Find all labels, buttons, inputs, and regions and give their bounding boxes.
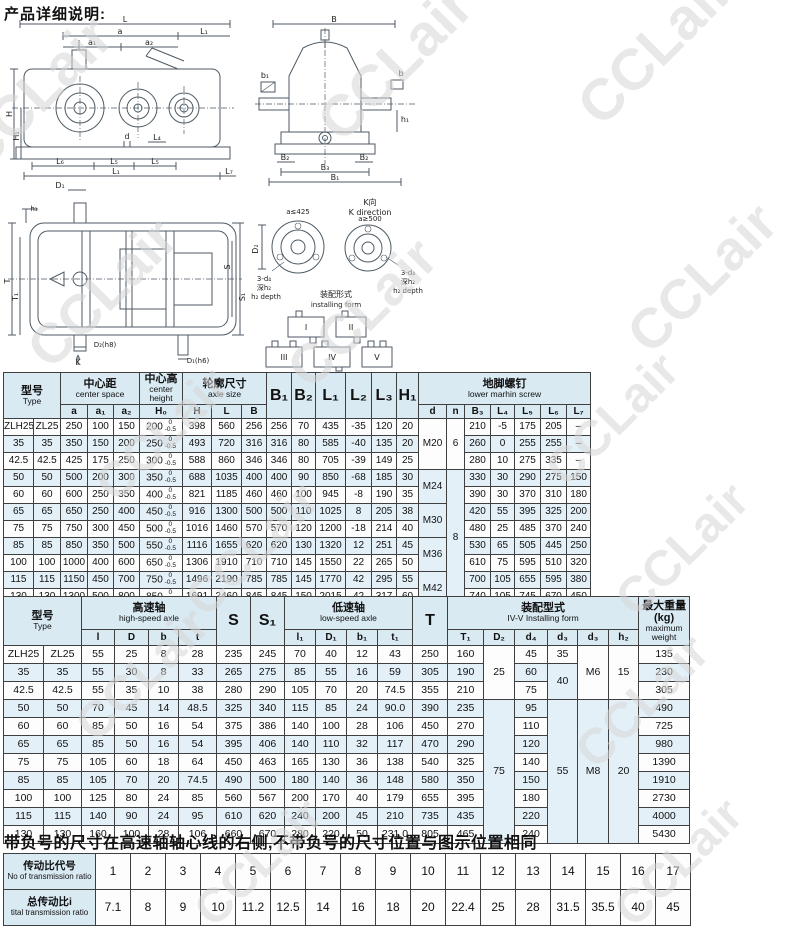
installing-form-caption-cn: 装配形式 [320,289,352,299]
cell: 588 [183,452,212,469]
cell: 11 [446,854,481,890]
cell: 530 [465,537,491,554]
cell: 540 [413,754,448,772]
front-view-drawing: L a L₁ a₁ a₂ H H₁ d L₄ L₆ L₅ L₅ L₁ L₇ D₁ [8,14,238,194]
header-cell: a [61,404,88,418]
cell: 250 [88,503,114,520]
header-cell: B₃ [465,404,491,418]
form-label-2: II [349,323,354,332]
cell: 16 [621,854,656,890]
cell: 25 [484,646,515,700]
cell: 100 [316,718,347,736]
cell: 25 [115,646,149,664]
cell: 445 [541,537,567,554]
cell: 30 [491,469,515,486]
cell: 100 [34,554,61,571]
cell: 595 [515,554,541,571]
cell: 35.5 [586,890,621,926]
cell: 150 [114,418,140,435]
form-label-3: III [280,353,287,362]
cell: 346 [267,452,292,469]
cell: 14 [551,854,586,890]
cell: 95 [515,700,548,718]
cell: 75 [515,682,548,700]
drawing-lines [8,203,244,365]
cell: 750 [61,520,88,537]
dim-D2: D₂(h8) [94,341,117,349]
cell: 1200 [316,520,346,537]
header-cell: H₁ [397,373,419,419]
cell: 55 [548,700,578,844]
cell: 220 [515,808,548,826]
cell: 15 [609,646,639,700]
cell: 55 [491,503,515,520]
cell: 6500-0.5 [140,554,183,571]
cell: 45 [397,537,419,554]
cell: 1320 [316,537,346,554]
cell: -5 [491,418,515,435]
dim-L: L [123,15,128,24]
cell: 18 [376,890,411,926]
cell: 60 [34,486,61,503]
cell: 295 [372,571,397,588]
cell: 35 [115,682,149,700]
cell: 20 [347,682,378,700]
cell: 1116 [183,537,212,554]
cell: 305 [413,664,448,682]
cell: 22 [346,554,372,571]
cell: 90.0 [378,700,413,718]
cell: 10 [149,682,179,700]
cell: 75 [4,520,34,537]
cell: 705 [316,452,346,469]
k-direction-title-cn: K向 [363,197,376,207]
cell: 12 [346,537,372,554]
cell: 190 [448,664,484,682]
cell: 117 [378,736,413,754]
cell: 595 [541,571,567,588]
header-cell: D₁ [316,630,347,646]
cell: 250 [567,537,591,554]
cell: 1390 [639,754,690,772]
cell: 130 [316,754,347,772]
header-cell: L₂ [346,373,372,419]
cell: 5000-0.5 [140,520,183,537]
cell: 5 [236,854,271,890]
cell: 75 [34,520,61,537]
cell: 1910 [639,772,690,790]
cell: ZL25 [34,418,61,435]
cell: 42.5 [44,682,82,700]
cell: 85 [179,790,217,808]
cell: 1185 [212,486,242,503]
cell: 24 [149,790,179,808]
cell: 7 [306,854,341,890]
cell: 18 [149,754,179,772]
cell: 31.5 [551,890,586,926]
cell: 45 [656,890,691,926]
cell: 9 [376,854,411,890]
form-label-1: I [305,323,307,332]
side-view-drawing: B b₁ b h₁ B₂ B₂ B₃ B₁ [255,14,415,194]
cell: 245 [251,646,285,664]
dim-a1: a₁ [88,38,96,47]
cell: 256 [267,418,292,435]
cell: 65 [4,503,34,520]
cell: 80 [115,790,149,808]
cell: 55 [82,664,115,682]
cell: 115 [34,571,61,588]
cell: 35 [44,664,82,682]
product-detail-page: 产品详细说明: CCLair CCLair CCLair CCLair CCLa… [0,0,800,926]
cell: 140 [285,718,316,736]
cell: 355 [413,682,448,700]
dim-D2: D₂ [251,244,260,253]
header-cell: b₁ [347,630,378,646]
cell: 42 [346,571,372,588]
cell: 300 [88,520,114,537]
cell: 688 [183,469,212,486]
cell: 8 [341,854,376,890]
cell: 总传动比itital transmission ratio [4,890,96,926]
cell: 320 [567,554,591,571]
cell: 260 [465,435,491,452]
cell: 70 [316,682,347,700]
cell: 490 [217,772,251,790]
cell: 785 [242,571,267,588]
cell: 7.1 [96,890,131,926]
circle2-label: a≥500 [358,215,382,223]
dim-B2b: B₂ [360,153,369,162]
cell: 179 [378,790,413,808]
note-depth-en: h₂ depth [251,293,281,301]
cell: 140 [316,772,347,790]
cell: 6 [447,418,465,469]
drawing-lines [10,20,236,190]
cell: 30 [115,664,149,682]
cell: 335 [541,452,567,469]
cell: 50 [4,700,44,718]
cell: 214 [372,520,397,537]
cell: 42.5 [4,682,44,700]
header-cell: B₂ [292,373,316,419]
cell: 655 [413,790,448,808]
cell: 2000-0.5 [140,418,183,435]
cell: 1460 [212,520,242,537]
cell: 3000-0.5 [140,452,183,469]
cell: 85 [44,772,82,790]
cell: 275 [515,452,541,469]
cell: 490 [639,700,690,718]
cell: 175 [515,418,541,435]
cell: 22.4 [446,890,481,926]
header-cell: T [413,597,448,646]
table-row: 505070451448.5325340115852490.0390235759… [4,700,690,718]
cell: 13 [516,854,551,890]
cell: 400 [267,469,292,486]
cell: 305 [639,682,690,700]
header-cell: 中心距center space [61,373,140,405]
cell: 655 [515,571,541,588]
dim-h1: h₁ [401,115,409,124]
cell: 485 [515,520,541,537]
cell: 70 [285,646,316,664]
cell: 860 [212,452,242,469]
cell: 230 [639,664,690,682]
cell: 500 [267,503,292,520]
cell: 1035 [212,469,242,486]
k-direction-drawing: K向 K direction a≤425 a≥500 D₂ 3-d₄ 深h₂ h… [248,195,428,371]
dim-b1: b₁ [261,71,269,80]
cell: -8 [346,486,372,503]
cell: 40 [548,664,578,700]
cell: 620 [251,808,285,826]
cell: 42.5 [4,452,34,469]
cell: 610 [465,554,491,571]
cell: 275 [541,469,567,486]
cell: 75 [4,754,44,772]
dim-S1: S₁ [238,293,247,301]
header-cell: 低速轴low-speed axle [285,597,413,630]
cell: 125 [82,790,115,808]
dim-S: S [223,264,232,269]
dim-L1: L₁ [200,27,208,36]
header-cell: L [212,404,242,418]
cell: 28 [347,718,378,736]
cell: 620 [267,537,292,554]
cell: 7500-0.5 [140,571,183,588]
cell: 45 [115,700,149,718]
cell: 65 [34,503,61,520]
cell: 80 [292,452,316,469]
cell: 2500-0.5 [140,435,183,452]
cell: 115 [4,571,34,588]
cell: 290 [448,736,484,754]
cell: 50 [397,554,419,571]
cell: 255 [515,435,541,452]
cell: 510 [541,554,567,571]
dim-a: a [118,27,123,36]
header-cell: t [179,630,217,646]
cell: 35 [4,435,34,452]
header-cell: a₂ [114,404,140,418]
cell: 20 [397,435,419,452]
cell: 4500-0.5 [140,503,183,520]
cell: 250 [413,646,448,664]
cell: 10 [411,854,446,890]
dim-D1: D₁ [55,181,64,190]
cell: 325 [541,503,567,520]
cell: 45 [515,646,548,664]
cell: 710 [267,554,292,571]
dim-H1: H₁ [12,131,21,140]
cell: 235 [217,646,251,664]
dim-h1: h₁ [30,205,37,213]
cell: 105 [491,571,515,588]
cell: 145 [292,571,316,588]
cell: 505 [515,537,541,554]
cell: 350 [88,537,114,554]
cell: 16 [149,736,179,754]
cell: 1910 [212,554,242,571]
header-cell: b [149,630,179,646]
cell: 60 [44,718,82,736]
cell: 560 [212,418,242,435]
cell: 120 [515,736,548,754]
cell: 316 [267,435,292,452]
cell: 85 [285,664,316,682]
cell: 140 [515,754,548,772]
table-row: lDbtl₁D₁b₁t₁T₁D₂d₄d₃d₃h₂ [4,630,690,646]
cell: 4000 [639,808,690,826]
cell: 60 [4,486,34,503]
cell: 100 [44,790,82,808]
cell: 140 [82,808,115,826]
table-row: ZLH25ZL252501001502000-0.539856025625670… [4,418,591,435]
cell: M20 [419,418,447,469]
cell: 450 [114,520,140,537]
cell: 370 [515,486,541,503]
cell: 265 [217,664,251,682]
cell: 3500-0.5 [140,469,183,486]
cell: 980 [639,736,690,754]
cell: 43 [378,646,413,664]
cell: 105 [82,754,115,772]
table-row: 65656502504004500-0.59161300500500110102… [4,503,591,520]
cell: 20 [149,772,179,790]
cell: ZLH25 [4,646,44,664]
cell: 110 [316,736,347,754]
cell: 1025 [316,503,346,520]
cell: 480 [465,520,491,537]
table-row: 10010010004006006500-0.51306191071071014… [4,554,591,571]
cell: 500 [251,772,285,790]
cell: 200 [114,435,140,452]
cell: 85 [82,718,115,736]
cell: 205 [372,503,397,520]
cell: 85 [316,700,347,718]
cell: 120 [372,418,397,435]
cell: 65 [44,736,82,754]
cell: 1770 [316,571,346,588]
table-row: 85858503505005500-0.51116165562062013013… [4,537,591,554]
cell: 4 [201,854,236,890]
cell: 100 [4,554,34,571]
header-cell: H₀ [140,404,183,418]
cell: 325 [217,700,251,718]
table-row: 总传动比itital transmission ratio7.1891011.2… [4,890,691,926]
table-row: 42.542.54251752503000-0.5588860346346807… [4,452,591,469]
cell: 450 [413,718,448,736]
header-cell: L₇ [567,404,591,418]
cell: 200 [316,808,347,826]
header-cell: a₁ [88,404,114,418]
cell: ZL25 [44,646,82,664]
cell: 2730 [639,790,690,808]
cell: 33 [179,664,217,682]
cell: 35 [4,664,44,682]
header-cell: t₁ [378,630,413,646]
cell: 250 [61,418,88,435]
cell: 463 [251,754,285,772]
cell: 190 [372,486,397,503]
cell: 725 [639,718,690,736]
cell: 1306 [183,554,212,571]
cell: M36 [419,537,447,571]
dim-L1b: L₁ [112,167,120,176]
header-cell: d₄ [515,630,548,646]
cell: 8 [149,664,179,682]
watermark: CCLair [614,190,790,366]
cell: 10 [491,452,515,469]
cell: 38 [179,682,217,700]
cell: 500 [61,469,88,486]
cell: 16 [341,890,376,926]
cell: 916 [183,503,212,520]
cell: 90 [292,469,316,486]
cell: 20 [397,418,419,435]
cell: 59 [378,664,413,682]
cell: 28 [516,890,551,926]
cell: 115 [44,808,82,826]
dim-D1: D₁(h6) [187,357,210,365]
header-cell: L₆ [541,404,567,418]
cell: 16 [347,664,378,682]
cell: 85 [34,537,61,554]
cell: 110 [515,718,548,736]
cell: 0 [491,435,515,452]
cell: 30 [397,469,419,486]
installing-form-caption-en: installing form [311,301,362,309]
cell: 130 [292,537,316,554]
cell: 400 [88,554,114,571]
dim-L5b: L₅ [151,157,159,166]
cell: 300 [114,469,140,486]
cell: 2 [131,854,166,890]
dim-L7: L₇ [225,167,233,176]
cell: 60 [515,664,548,682]
header-cell: l₁ [285,630,316,646]
header-cell: L₄ [491,404,515,418]
cell: 55 [82,682,115,700]
cell: 120 [292,520,316,537]
dim-L5: L₅ [110,157,118,166]
cell: 205 [541,418,567,435]
cell: 70 [292,418,316,435]
drawing-lines [255,20,415,186]
dim-B1: B₁ [331,173,340,182]
cell: 240 [567,520,591,537]
cell: 710 [242,554,267,571]
header-cell: L₃ [372,373,397,419]
cell: 42.5 [34,452,61,469]
cell: 149 [372,452,397,469]
header-cell: h₂ [609,630,639,646]
cell: -68 [346,469,372,486]
cell: 32 [347,736,378,754]
cell: 50 [4,469,34,486]
cell: 735 [413,808,448,826]
cell: 210 [465,418,491,435]
cell: – [567,418,591,435]
cell: 210 [378,808,413,826]
header-cell: d₃ [548,630,578,646]
cell: 567 [251,790,285,808]
cell: 650 [61,503,88,520]
dimensions-table: 型号Type中心距center space中心高center height轮廓尺… [3,372,591,606]
cell: 400 [114,503,140,520]
dim-B: B [331,15,337,24]
